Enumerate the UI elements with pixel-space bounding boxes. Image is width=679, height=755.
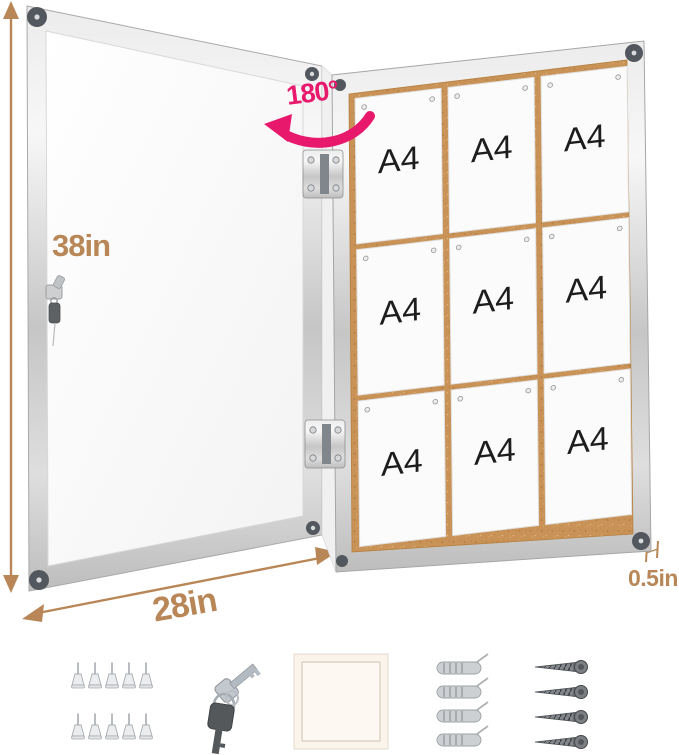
paper-pin-icon — [363, 256, 368, 261]
a4-label: A4 — [567, 421, 609, 462]
product-illustration: A4 A4 A4 A4 — [0, 0, 679, 755]
keys-icon — [203, 659, 261, 755]
paper-pin-icon — [523, 85, 528, 90]
push-pins — [72, 663, 153, 739]
a4-paper: A4 — [448, 77, 535, 233]
mounting-screws — [535, 661, 588, 749]
paper-pin-icon — [431, 248, 436, 253]
wall-anchors — [437, 654, 488, 746]
paper-pin-icon — [524, 237, 529, 242]
a4-label: A4 — [471, 129, 513, 170]
paper-pin-icon — [430, 96, 435, 101]
paper-pin-icon — [616, 74, 621, 79]
a4-label: A4 — [565, 269, 607, 310]
paper-pin-icon — [362, 104, 367, 109]
hinge-bottom-icon — [305, 420, 345, 468]
a4-paper: A4 — [450, 229, 537, 385]
board-graphic: A4 A4 A4 A4 — [0, 0, 679, 755]
paper-pin-icon — [617, 226, 622, 231]
height-label: 38in — [52, 230, 110, 261]
paper-pin-icon — [549, 234, 554, 239]
a4-label: A4 — [381, 443, 423, 484]
a4-paper: A4 — [357, 240, 445, 396]
height-dimension-line — [3, 1, 19, 593]
hinge-top-icon — [303, 150, 343, 198]
paper-pin-icon — [458, 396, 463, 401]
paper-pin-icon — [433, 399, 438, 404]
depth-label: 0.5in — [628, 567, 678, 590]
a4-paper: A4 — [543, 218, 631, 374]
rotation-label: 180° — [285, 77, 340, 110]
a4-paper: A4 — [541, 66, 629, 222]
door-panel — [27, 6, 322, 591]
a4-label: A4 — [564, 118, 606, 159]
a4-label: A4 — [379, 291, 421, 332]
paper-pin-icon — [551, 385, 556, 390]
a4-label: A4 — [378, 140, 420, 181]
a4-paper: A4 — [544, 369, 632, 525]
paper-pin-icon — [548, 82, 553, 87]
a4-paper: A4 — [358, 391, 446, 547]
paper-pin-icon — [526, 388, 531, 393]
a4-label: A4 — [472, 280, 514, 321]
paper-pin-icon — [456, 245, 461, 250]
a4-label: A4 — [474, 432, 516, 473]
adhesive-pad — [294, 654, 388, 749]
paper-pin-icon — [455, 93, 460, 98]
display-board: A4 A4 A4 A4 — [332, 41, 651, 572]
a4-paper: A4 — [451, 380, 538, 536]
paper-pin-icon — [365, 407, 370, 412]
paper-pin-icon — [619, 377, 624, 382]
paper-grid: A4 A4 A4 A4 — [355, 66, 632, 546]
